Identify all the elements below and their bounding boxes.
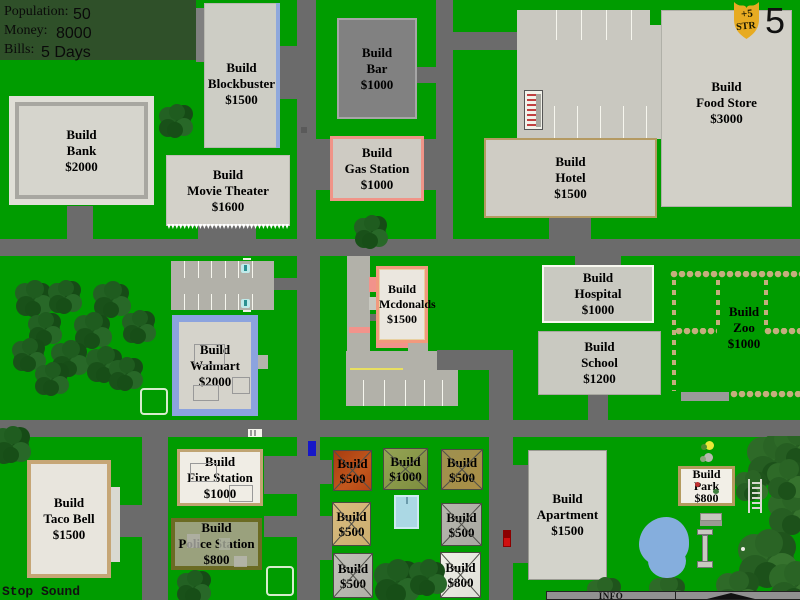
svg-text:+5: +5 <box>740 7 753 20</box>
svg-text:STR: STR <box>736 20 757 33</box>
